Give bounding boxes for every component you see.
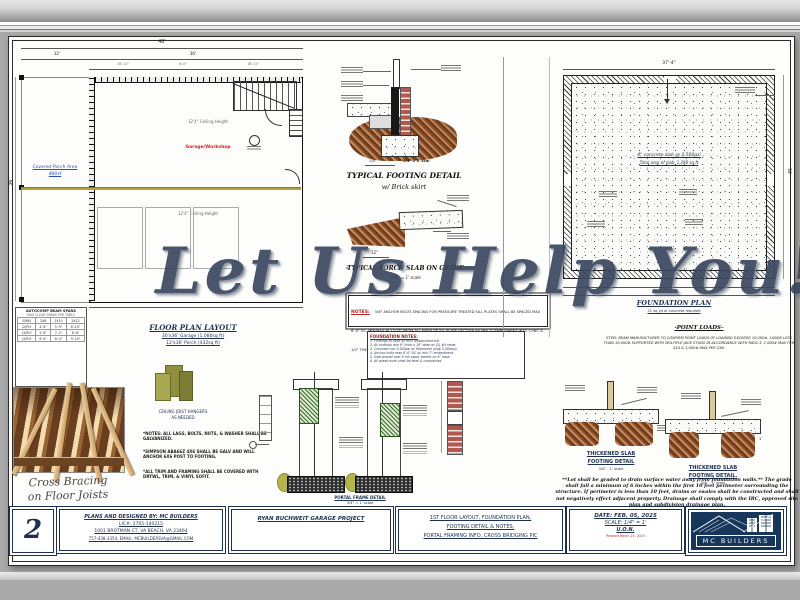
photo-caption2: on Floor Joists — [15, 487, 121, 504]
dim-line — [563, 69, 775, 70]
annotation-lines — [565, 385, 585, 393]
annotation-lines — [335, 397, 359, 409]
hanger-caption: CEILING JOIST HANGERS — [141, 409, 225, 414]
annotation-lines — [741, 399, 761, 407]
leader-line — [411, 69, 441, 70]
footing-gravel — [355, 476, 413, 493]
joist-plank — [53, 382, 72, 482]
designer-line3: 1001 BROTMAN CT, VA BEACH, VA 23464 — [60, 529, 222, 534]
thick-slab-title1: THICKENED SLAB — [663, 465, 763, 471]
leader-line — [755, 95, 775, 96]
brick-course-detail — [447, 381, 463, 411]
room-label: Garage/Workshop — [153, 145, 263, 150]
leader-line — [255, 444, 269, 445]
scale-left-label: 1/4" — [369, 159, 376, 163]
beam-table-grid: SPAN 2X8 2X10 2X12 (2)PLY 4'-6" 5'-9" 6'… — [17, 317, 85, 342]
annotation-lines — [735, 87, 755, 95]
arrow-head — [664, 99, 670, 104]
north-leader — [667, 79, 668, 101]
dim-line — [89, 69, 303, 70]
garage-bay-outline — [97, 207, 143, 269]
scale-label: 3/4" = 1' scal — [403, 159, 429, 163]
uon-label: U.O.N. — [570, 527, 681, 533]
sheathing-panel — [380, 403, 400, 437]
steel-beam-line — [21, 187, 301, 190]
floor-plan-title: FLOOR PLAN LAYOUT — [123, 323, 263, 332]
annotation-lines — [681, 393, 701, 401]
thick-slab-title2: FOOTING DETAIL — [561, 459, 661, 465]
leader-line — [363, 85, 389, 86]
beam-cell: 8'-4" — [51, 336, 67, 342]
dim-left: 12' — [27, 51, 87, 56]
joist-hanger-render — [155, 365, 215, 405]
portal-scale: 3/4" = 1' scale — [305, 501, 415, 505]
dim-line — [21, 59, 303, 60]
annotation-lines — [341, 67, 363, 75]
leader-line — [721, 410, 749, 417]
logo-wordmark: MC BUILDERS — [696, 535, 776, 547]
floor-plan-sub1: 30'x36' Garage (1,080sq ft) — [123, 334, 263, 339]
dim-label: 1' — [759, 437, 762, 441]
sheet-title-line1: 1ST FLOOR LAYOUT, FOUNDATION PLAN, — [399, 515, 562, 521]
earth-hatch — [669, 432, 699, 458]
dim-overall: 48' — [13, 39, 311, 45]
earth-hatch — [615, 422, 653, 446]
annotation-lines — [637, 387, 657, 395]
annotation-lines — [341, 95, 363, 103]
point-loads-text: STEEL BEAM MANUFACTURER TO CONFIRM POINT… — [601, 336, 797, 351]
sheet-number-box: 2 — [12, 509, 54, 553]
leader-line — [621, 398, 646, 405]
typical-footing-detail: 1/4" 3/4" = 1' scal TYPICAL FOOTING DETA… — [341, 59, 467, 199]
notes-label: NOTES: — [351, 310, 370, 315]
annotation-lines — [339, 437, 363, 449]
sheet-title-box: 1ST FLOOR LAYOUT, FOUNDATION PLAN, FOOTI… — [398, 509, 563, 551]
foundation-dim-top: 37'-4" — [557, 61, 781, 66]
band-gap — [767, 174, 774, 186]
leader-line — [363, 71, 391, 72]
ceiling-height-label: 12'4" Ceiling Height — [153, 119, 263, 124]
designer-line4: 757-438-3354, EMAIL: MCBUILDERSVA@GMAIL.… — [60, 536, 222, 541]
annotation-lines — [587, 221, 605, 227]
hanger-caption2: AS NEEDED — [141, 415, 225, 420]
thick-slab-scale: 3/4" - 1' scale — [561, 467, 661, 471]
logo-art-icon — [691, 512, 781, 536]
designer-box: PLANS AND DESIGNED BY: MC BUILDERS LIC#:… — [59, 509, 223, 551]
watermark-text: Let Us Help You! — [156, 234, 800, 309]
dim-seg3: 16'-11" — [227, 62, 279, 66]
date-value: DATE: FEB. 05, 2025 — [570, 513, 681, 519]
annotation-lines — [403, 443, 427, 455]
window-top-band — [0, 0, 800, 22]
beam-span-table: AUTOCOMP BEAM SPANS MAX CLEAR SPANS PER … — [15, 307, 87, 387]
slab-section — [399, 210, 464, 230]
beam-cell: 9'-10" — [67, 336, 85, 342]
scale-tick — [365, 165, 395, 166]
portal-caption: PORTAL FRAME DETAIL — [305, 495, 415, 500]
footing-detail-subtitle: w/ Brick skirt — [341, 183, 467, 191]
post-outline — [393, 59, 400, 89]
thick-slab-title1: THICKENED SLAB — [561, 451, 661, 457]
dim-right: 36' — [123, 51, 263, 56]
annotation-lines — [685, 219, 703, 225]
detail-bubble — [249, 441, 257, 449]
annotation-lines — [679, 189, 697, 195]
foundation-plan-subtitle: 21 sq yd of concrete required — [594, 309, 754, 313]
post-outline — [709, 391, 716, 421]
beam-table-note: MAX CLEAR SPANS PER TABLE — [17, 313, 85, 317]
revised-date: Revised March 25, 2025 — [570, 534, 681, 538]
sheet-title-line3: PORTAL FRAMING INFO, CROSS BRIDGING PIC — [399, 533, 562, 539]
logo-box: MC BUILDERS — [688, 509, 784, 553]
project-box: RYAN BUCHWEIT GARAGE PROJECT — [231, 509, 391, 551]
designer-line1: PLANS AND DESIGNED BY: MC BUILDERS — [60, 514, 222, 520]
concrete-footing — [381, 135, 419, 157]
portal-frame-details: PORTAL FRAME DETAIL 3/4" = 1' scale — [249, 367, 474, 515]
block-course — [447, 411, 463, 425]
mc-builders-logo: MC BUILDERS — [691, 512, 781, 550]
blueprint-viewer-page: { "watermark": "Let Us Help You!", "shee… — [0, 0, 800, 600]
date-scale-box: DATE: FEB. 05, 2025 SCALE: 1/4" = 1' U.O… — [569, 509, 682, 551]
beam-cell: (4)PLY — [18, 336, 36, 342]
porch-label: Covered Porch Area — [25, 165, 85, 170]
slab-label-line1: 4" concrete slab @ 3,500psi — [602, 153, 736, 158]
footing-detail-title: TYPICAL FOOTING DETAIL — [341, 171, 467, 180]
beam-cell: 6'-6" — [36, 336, 51, 342]
porch-outline — [21, 77, 91, 303]
sill-beam — [14, 458, 124, 466]
earth-hatch — [721, 432, 755, 458]
dim-line — [15, 77, 16, 301]
earth-hatch — [565, 422, 599, 446]
slab-label-line2: Total area of slab: 1,296 sq ft — [602, 160, 736, 165]
leader-line — [433, 231, 451, 232]
porch-post — [19, 297, 24, 302]
project-name: RYAN BUCHWEIT GARAGE PROJECT — [232, 516, 390, 522]
porch-area-label: 480sf — [25, 172, 85, 177]
dim-line — [441, 381, 442, 453]
band-gap — [664, 76, 676, 83]
decorative-stripe-band — [0, 22, 800, 36]
foundation-note: 6. All grade work shall be level & compa… — [370, 359, 522, 363]
strap-detail — [259, 395, 272, 441]
pier-section — [391, 87, 399, 139]
annotation-lines — [341, 81, 363, 89]
dim-seg1: 16'-11" — [97, 62, 149, 66]
sheathing-panel — [299, 388, 319, 424]
dim-side: 36' — [8, 178, 14, 186]
floor-plan-sub2: 12'x36' Porch (432sq ft) — [123, 341, 263, 346]
annotation-lines — [403, 405, 427, 417]
dim-line — [21, 48, 303, 49]
annotation-lines — [599, 191, 617, 197]
bottom-stripe-band — [0, 572, 800, 580]
sheet-number: 2 — [13, 510, 53, 550]
annotation-lines — [441, 65, 461, 73]
hanger-left-flange — [155, 373, 171, 401]
grading-note: **Lot shall be graded to drain surface w… — [555, 477, 799, 508]
post-outline — [607, 381, 614, 411]
point-loads-title: -POINT LOADS- — [609, 325, 789, 331]
hanger-right-flange — [179, 371, 193, 401]
brick-course-detail — [447, 425, 463, 455]
sheet-title-line2: FOOTING DETAIL & NOTES, — [399, 524, 562, 530]
foundation-dim-right: 38' — [786, 168, 791, 175]
annotation-lines — [447, 195, 469, 203]
footing-gravel — [287, 476, 345, 493]
band-gap — [564, 174, 571, 186]
stair-side-treads — [289, 109, 303, 137]
dim-seg2: 6'-0" — [163, 62, 203, 66]
thickened-slab-detail-a: THICKENED SLAB FOOTING DETAIL 3/4" - 1' … — [559, 379, 664, 479]
porch-post — [19, 75, 24, 80]
scale-value: SCALE: 1/4" = 1' — [570, 520, 681, 526]
cross-bracing-photo — [13, 387, 125, 473]
designer-line2: LIC#: 2705-140215 — [60, 522, 222, 527]
